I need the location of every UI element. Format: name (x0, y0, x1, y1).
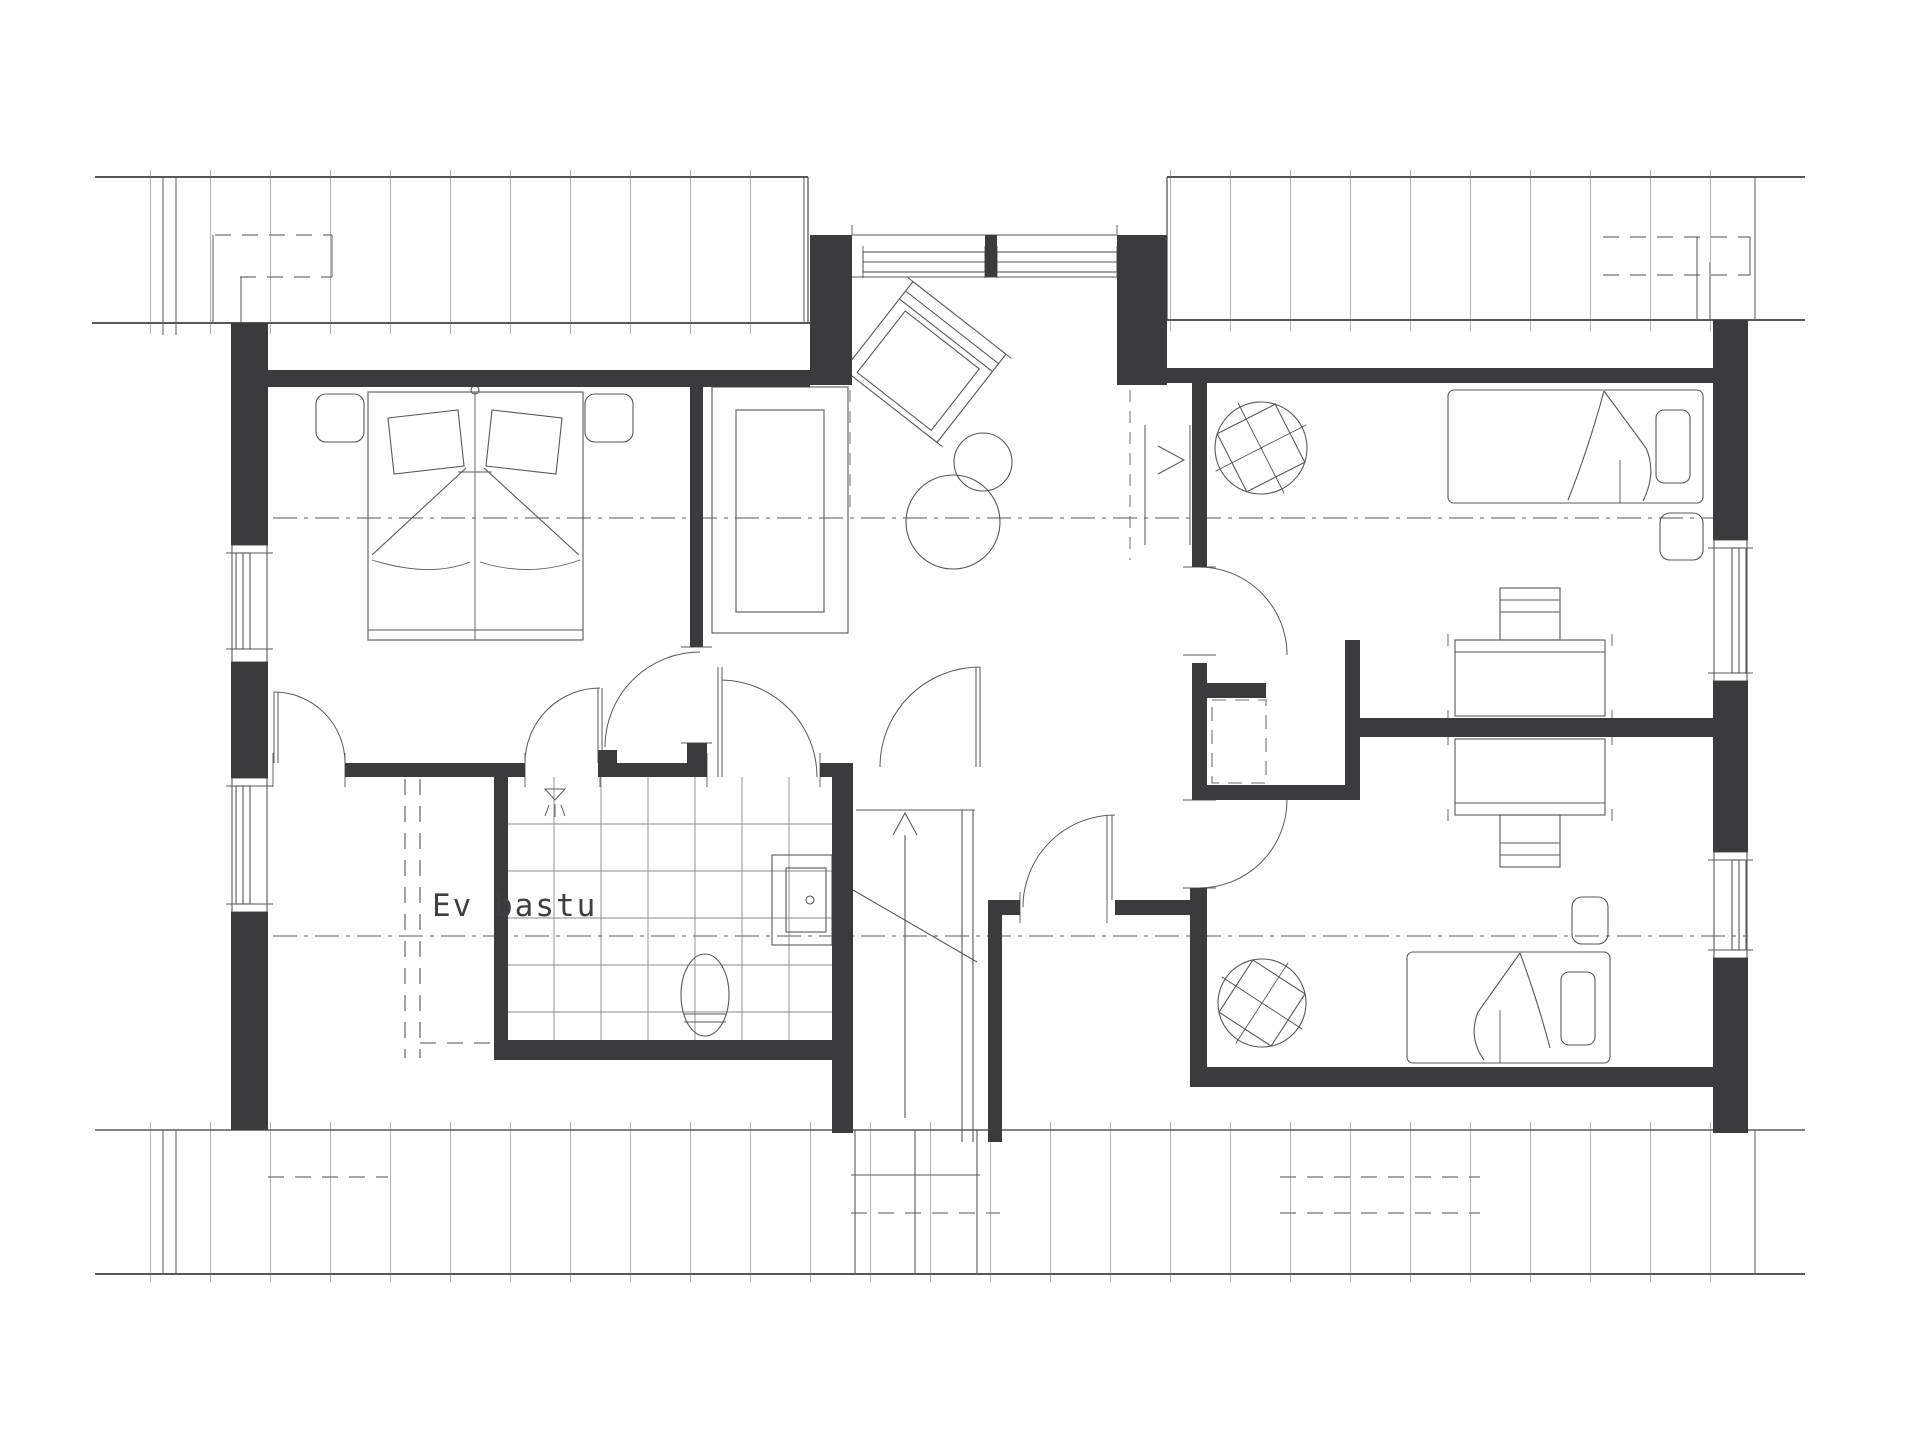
wall-separator (600, 763, 687, 777)
windows (226, 225, 1753, 958)
nightstand (585, 394, 633, 442)
nightstand (1572, 897, 1608, 944)
pillow (1561, 972, 1595, 1045)
wall-exterior-top-right (1167, 368, 1748, 383)
round-chair (1210, 951, 1314, 1055)
wall-bathroom-south (494, 1040, 853, 1060)
wall-hall-east-upper (1192, 383, 1207, 567)
single-bed (1407, 952, 1610, 1063)
door-jamb-ticks (273, 567, 1216, 923)
walls (231, 235, 1748, 1142)
roof-band-top-right (1167, 170, 1758, 331)
bedroom-north-east (1203, 390, 1703, 722)
floor-plan-drawing: Ev bastu (0, 0, 1920, 1439)
wall-bedroom-left-east (690, 385, 703, 647)
doors (273, 425, 1287, 923)
pillow (1656, 410, 1690, 483)
door-bathroom-main (718, 667, 817, 777)
wall-exterior-bottom-right (1190, 1067, 1713, 1087)
round-table (906, 475, 1000, 569)
floor-plan-page: Ev bastu (0, 0, 1920, 1439)
door-stair-top (880, 667, 980, 767)
wall-exterior-top-left (268, 370, 810, 387)
window-left-lower (226, 778, 273, 912)
stair-break-line (853, 890, 977, 962)
wall-bathroom-east (832, 763, 853, 1133)
knee-wall-dashes (850, 390, 1130, 560)
shower-icon (545, 789, 565, 817)
wall-chimney-top (1207, 683, 1266, 698)
desk-and-chair (1448, 733, 1612, 867)
wall-exterior-right (1713, 320, 1748, 540)
wall-chimney-bottom (1192, 785, 1360, 800)
bench (712, 387, 848, 633)
wall-exterior-right (1713, 958, 1748, 1133)
single-bed (1448, 390, 1703, 503)
wall-hall-east-lower (1192, 663, 1207, 800)
toilet-icon (681, 954, 729, 1036)
wall-bay-pier-left (810, 235, 852, 385)
wall-chimney-right (1345, 640, 1360, 800)
wall-exterior-left (231, 323, 268, 545)
wall-separator (345, 763, 525, 777)
wall-exterior-left (231, 912, 268, 1130)
wall-landing-north (1115, 900, 1192, 915)
roof-band-top-left (130, 170, 808, 334)
sink-icon (772, 855, 832, 945)
wall-stub (988, 900, 1020, 915)
bedroom-left (316, 386, 633, 640)
wall-stair-east (988, 900, 1002, 1142)
window-right-upper (1708, 540, 1753, 681)
armchair (839, 277, 1012, 447)
wall-bay-mullion (985, 235, 997, 277)
blanket-fold (1568, 391, 1651, 501)
desk-and-chair (1448, 588, 1612, 722)
wall-stub (687, 743, 707, 777)
door-bedroom-to-hall (605, 652, 700, 747)
window-left-upper (226, 545, 273, 662)
double-bed (368, 392, 583, 640)
bedroom-south-east (1210, 733, 1612, 1063)
blanket-fold (1474, 953, 1550, 1060)
nightstand (316, 394, 364, 442)
roof-band-bottom (130, 1122, 1758, 1282)
wall-exterior-right (1713, 681, 1748, 852)
wall-exterior-left (231, 662, 268, 778)
door-bedroom-to-sauna (274, 692, 345, 763)
door-landing (1023, 815, 1115, 907)
pouf (954, 433, 1012, 491)
chimney-flue-dashed (1212, 700, 1266, 783)
door-bathroom-inner (525, 688, 602, 763)
window-right-lower (1708, 852, 1753, 958)
room-label-ev-bastu: Ev bastu (432, 888, 597, 924)
wall-bedroom-se-west (1190, 888, 1207, 1087)
door-swing-arrow-icon (1158, 446, 1184, 474)
wall-between-bedrooms (1360, 718, 1713, 737)
nightstand (1660, 513, 1703, 560)
stair-direction-arrow-icon (893, 813, 917, 835)
round-chair (1203, 390, 1319, 506)
wall-bay-pier-right (1117, 235, 1167, 385)
door-bedroom-se (1199, 800, 1287, 888)
stair-railing (962, 810, 973, 1142)
